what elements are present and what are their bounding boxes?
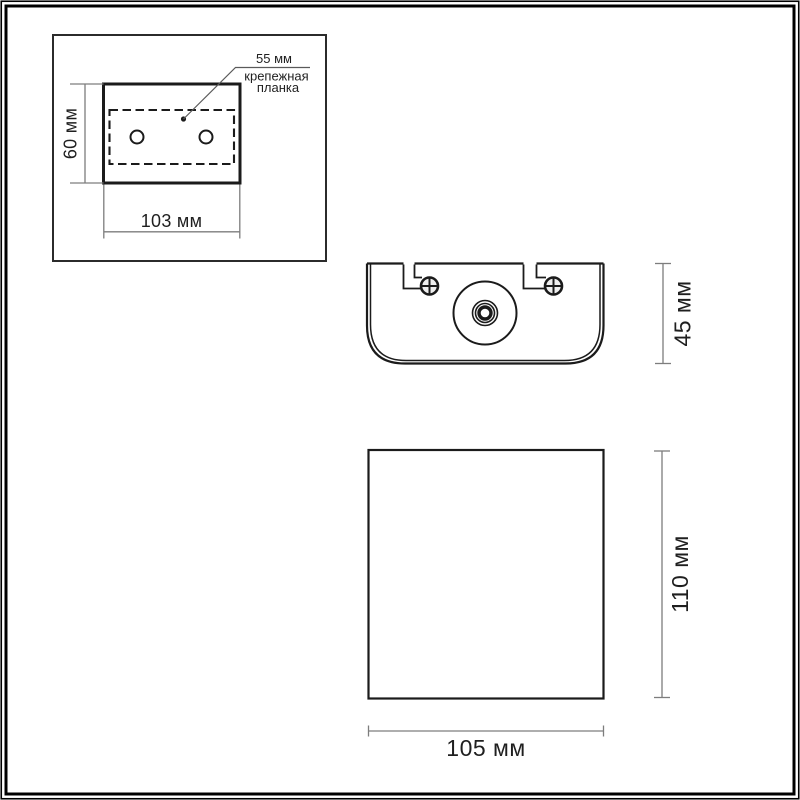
inset-height-label: 60 мм <box>61 108 81 159</box>
diagram-page: 55 мм крепежная планка 60 мм 103 мм <box>0 0 800 800</box>
inset-width-label: 103 мм <box>141 211 203 231</box>
screw-right-icon <box>545 278 562 295</box>
front-height-label: 110 мм <box>667 535 693 613</box>
top-view-height-dimension: 45 мм <box>655 264 696 364</box>
body-outline-outer <box>367 264 604 364</box>
back-plate-rect <box>104 84 241 183</box>
callout-value-label: 55 мм <box>256 51 292 66</box>
top-view-height-label: 45 мм <box>670 280 696 346</box>
lamp-top-view: 45 мм <box>367 264 696 364</box>
lamp-front-view: 110 мм 105 мм <box>369 450 694 761</box>
mounting-plate-inset: 55 мм крепежная планка 60 мм 103 мм <box>53 35 326 261</box>
screw-left-icon <box>421 278 438 295</box>
front-width-dimension: 105 мм <box>369 726 604 762</box>
diagram-canvas: 55 мм крепежная планка 60 мм 103 мм <box>0 0 800 800</box>
front-body-rect <box>369 450 604 699</box>
front-width-label: 105 мм <box>446 735 525 761</box>
callout-name-line2: планка <box>257 80 300 95</box>
front-height-dimension: 110 мм <box>654 451 693 698</box>
